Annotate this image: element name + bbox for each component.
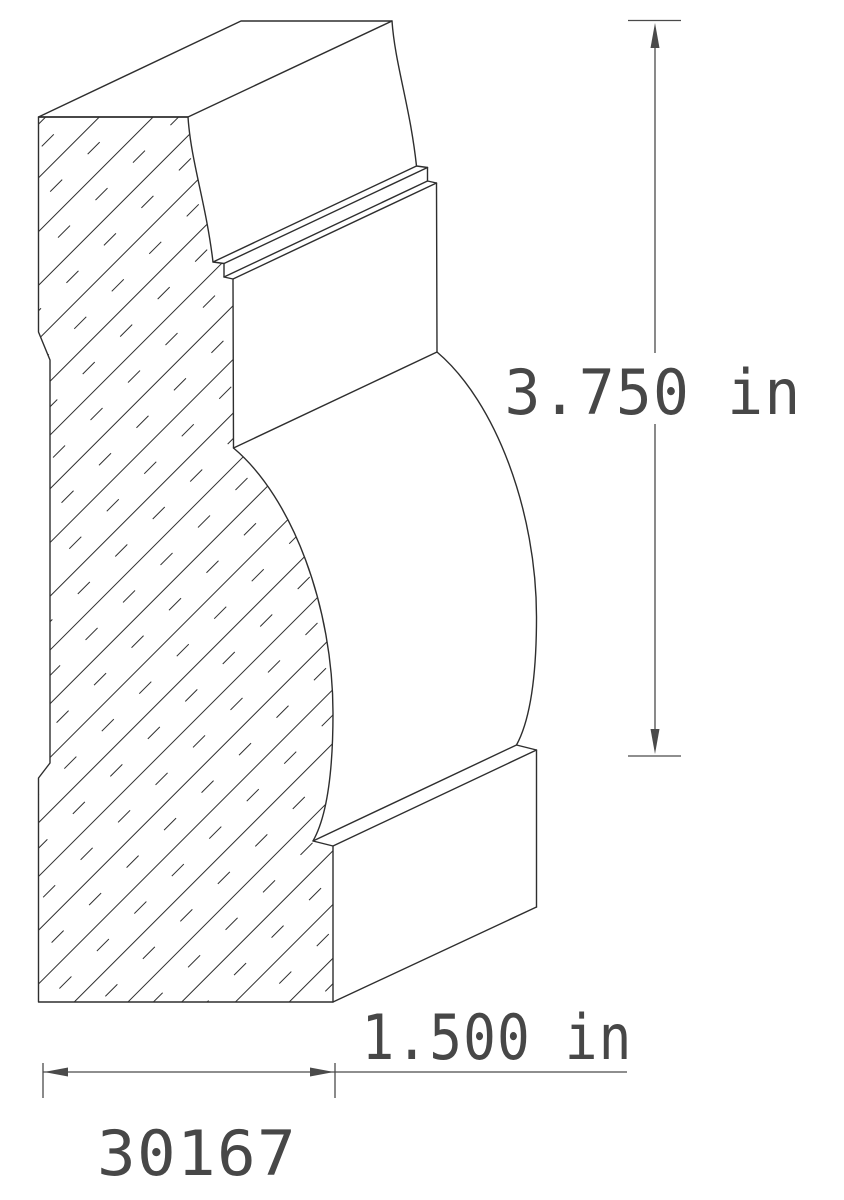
part-number-label: 30167 — [97, 1117, 297, 1190]
molding-back-profile — [392, 21, 537, 907]
drawing-page: 3.750 in 1.500 in 30167 — [0, 0, 844, 1200]
width-dimension-label: 1.500 in — [362, 1001, 633, 1074]
molding-body — [39, 21, 537, 1002]
width-dim-arrow-right-icon — [310, 1068, 334, 1077]
molding-top-face — [39, 21, 393, 117]
molding-profile-drawing: 3.750 in 1.500 in 30167 — [0, 0, 844, 1200]
height-dim-arrow-down-icon — [651, 729, 660, 754]
height-dim-arrow-up-icon — [651, 23, 660, 48]
height-dimension-label: 3.750 in — [505, 356, 802, 429]
molding-section-face — [39, 117, 334, 1002]
width-dim-arrow-left-icon — [44, 1068, 68, 1077]
